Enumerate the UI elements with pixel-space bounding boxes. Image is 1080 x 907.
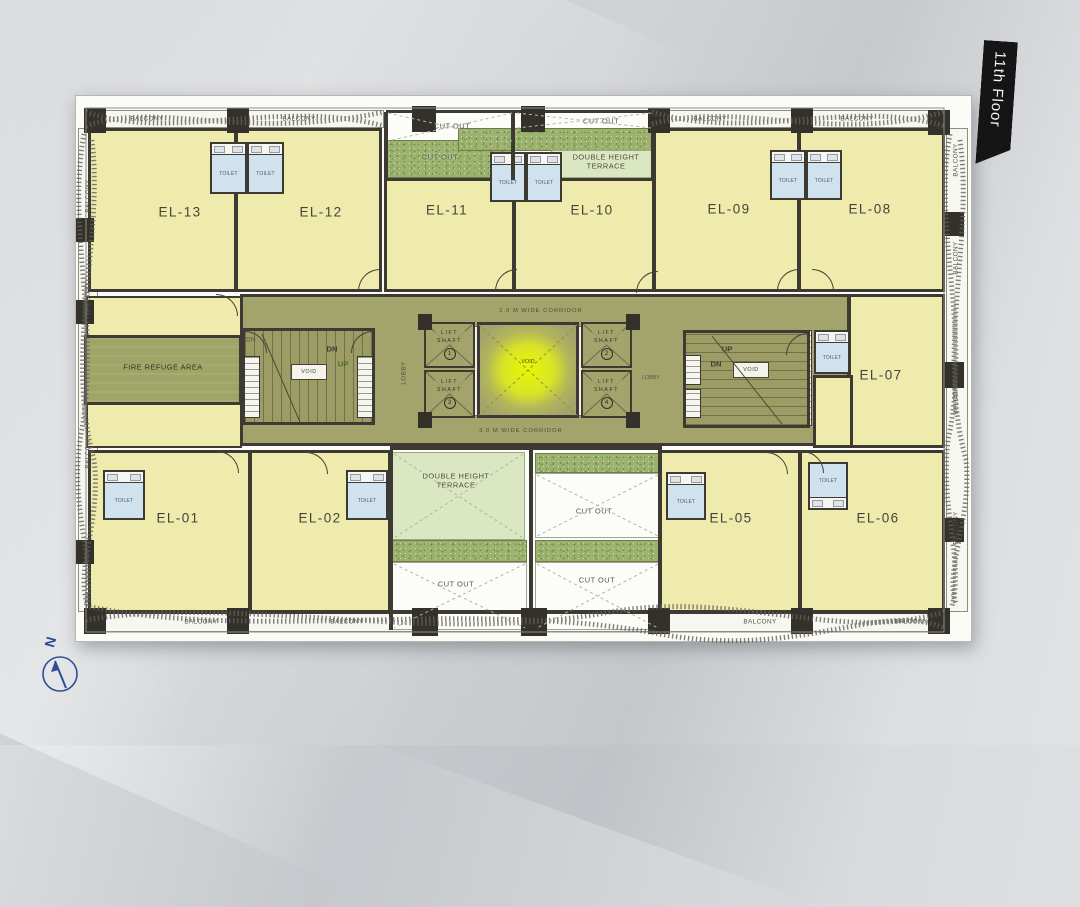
double-height-terrace-bottom <box>392 452 525 540</box>
terrace-label-bottom: DOUBLE HEIGHT TERRACE <box>414 472 498 489</box>
toilet-fixtures <box>348 472 386 483</box>
lift-shaft-2-number: 2 <box>601 348 613 360</box>
balcony-label: BALCONY <box>743 619 776 626</box>
toilet-el07: TOILET <box>814 330 850 374</box>
toilet-fixtures <box>816 332 848 343</box>
floor-banner-label: 11th Floor <box>986 51 1008 128</box>
unit-label-el02: EL-02 <box>298 511 341 526</box>
toilet-el13: TOILET <box>210 142 247 194</box>
planter-bottom-mid-top <box>535 453 660 473</box>
toilet-el10: TOILET <box>526 152 562 202</box>
central-void <box>477 322 579 418</box>
cutout-bottom-right <box>535 562 660 630</box>
balcony-label: BALCONY <box>130 116 163 123</box>
stair-void-box-right: VOID <box>733 362 769 378</box>
column <box>227 608 249 634</box>
balcony-label: BALCONY <box>693 116 726 123</box>
toilet-fixtures <box>772 152 804 163</box>
planter-top-right <box>458 128 653 151</box>
lift-shaft-4-number: 4 <box>601 397 613 409</box>
corridor-label-top: 2.0 M WIDE CORRIDOR <box>499 308 582 314</box>
compass-north-label: N <box>41 635 59 649</box>
column <box>76 540 94 564</box>
toilet-label: TOILET <box>772 163 804 198</box>
column <box>76 218 94 242</box>
toilet-el08: TOILET <box>806 150 842 200</box>
unit-label-el01: EL-01 <box>156 511 199 526</box>
corridor-label-bottom: 3.0 M WIDE CORRIDOR <box>479 428 562 434</box>
column <box>648 608 670 634</box>
lift-shaft-1-label: LIFT SHAFT <box>435 330 465 346</box>
toilet-el09: TOILET <box>770 150 806 200</box>
unit-label-el05: EL-05 <box>709 511 752 526</box>
duct-stair-right-b <box>685 389 701 418</box>
column <box>418 412 432 428</box>
unit-label-el10: EL-10 <box>570 203 613 218</box>
toilet-fixtures <box>105 472 143 483</box>
lift-shaft-3-label: LIFT SHAFT <box>435 379 465 395</box>
toilet-label: TOILET <box>212 155 245 192</box>
wall <box>389 450 393 630</box>
floor-plan-scene: LIFT SHAFT 1 LIFT SHAFT 2 LIFT SHAFT 3 L… <box>0 0 1080 745</box>
column <box>521 106 545 132</box>
planter-bottom-mid <box>535 540 660 562</box>
lift-shaft-2: LIFT SHAFT 2 <box>581 322 632 368</box>
fire-refuge-label: FIRE REFUGE AREA <box>123 363 202 372</box>
central-void-label: VOID <box>521 359 534 365</box>
unit-label-el12: EL-12 <box>299 205 342 220</box>
up-label-left: UP <box>338 360 349 369</box>
toilet-el05: TOILET <box>666 472 706 520</box>
duct-stair-left-a <box>244 356 260 418</box>
balcony-label: BALCONY <box>330 619 363 626</box>
lift-shaft-3-number: 3 <box>444 397 456 409</box>
toilet-fixtures <box>249 144 282 155</box>
balcony-label: BALCONY <box>85 281 92 314</box>
dn-label-right: DN <box>711 360 722 369</box>
column <box>928 608 950 634</box>
wall <box>529 450 533 630</box>
lift-shaft-4: LIFT SHAFT 4 <box>581 370 632 418</box>
balcony-label: BALCONY <box>840 116 873 123</box>
toilet-fixtures <box>492 154 524 165</box>
toilet-el01: TOILET <box>103 470 145 520</box>
toilet-label: TOILET <box>816 343 848 372</box>
toilet-fixtures <box>668 474 704 485</box>
toilet-fixtures <box>808 152 840 163</box>
lift-shaft-4-label: LIFT SHAFT <box>592 379 622 395</box>
cutout-label: CUT OUT <box>579 576 615 585</box>
toilet-label: TOILET <box>668 485 704 518</box>
balcony-label: BALCONY <box>953 511 960 544</box>
toilet-fixtures <box>212 144 245 155</box>
column <box>84 108 106 133</box>
toilet-label: TOILET <box>528 165 560 200</box>
lift-shaft-1-number: 1 <box>444 348 456 360</box>
column <box>521 608 547 636</box>
toilet-fixtures <box>528 154 560 165</box>
dn-label-left-small: DN <box>246 337 256 344</box>
wall <box>390 446 662 450</box>
planter-bottom-left <box>392 540 527 562</box>
unit-label-el08: EL-08 <box>848 202 891 217</box>
toilet-el02: TOILET <box>346 470 388 520</box>
unit-label-el07: EL-07 <box>859 368 902 383</box>
up-label-right: UP <box>722 345 733 354</box>
balcony-label: BALCONY <box>85 569 92 602</box>
lobby-arm-lower <box>86 403 242 448</box>
duct-stair-left-b <box>357 356 373 418</box>
column <box>791 108 813 133</box>
unit-label-el09: EL-09 <box>707 202 750 217</box>
column <box>928 110 950 135</box>
balcony-label: BALCONY <box>85 435 92 468</box>
balcony-label: BALCONY <box>953 381 960 414</box>
terrace-label-top: DOUBLE HEIGHT TERRACE <box>564 153 648 170</box>
toilet-label: TOILET <box>249 155 282 192</box>
balcony-label: BALCONY <box>85 179 92 212</box>
unit-el-07-extension <box>813 375 853 448</box>
column <box>626 314 640 330</box>
wall <box>658 450 662 630</box>
toilet-label: TOILET <box>492 165 524 200</box>
lift-shaft-3: LIFT SHAFT 3 <box>424 370 475 418</box>
cutout-label: CUT OUT <box>422 153 458 162</box>
toilet-el11: TOILET <box>490 152 526 202</box>
cutout-label: CUT OUT <box>583 117 619 126</box>
lobby-label-left: LOBBY <box>401 361 408 384</box>
lobby-label-right: LOBBY <box>642 375 660 381</box>
balcony-label: BALCONY <box>894 619 927 626</box>
unit-label-el06: EL-06 <box>856 511 899 526</box>
column <box>412 608 438 636</box>
balcony-label: BALCONY <box>184 619 217 626</box>
balcony-label: BALCONY <box>282 116 315 123</box>
balcony-label: BALCONY <box>953 241 960 274</box>
cutout-label: CUT OUT <box>438 580 474 589</box>
column <box>412 106 436 132</box>
column <box>648 108 670 133</box>
north-compass: N <box>24 630 96 708</box>
wall <box>384 112 388 180</box>
dn-label-left: DN <box>327 345 338 354</box>
column <box>227 108 249 133</box>
wall <box>88 610 945 614</box>
floor-banner: 11th Floor <box>975 40 1018 166</box>
wall <box>511 112 515 180</box>
toilet-fixtures <box>810 497 846 508</box>
toilet-label: TOILET <box>105 483 143 518</box>
toilet-el12: TOILET <box>247 142 284 194</box>
column <box>626 412 640 428</box>
unit-label-el13: EL-13 <box>158 205 201 220</box>
cutout-bottom-mid <box>535 473 660 538</box>
column <box>791 608 813 634</box>
balcony-label: BALCONY <box>953 143 960 176</box>
toilet-label: TOILET <box>808 163 840 198</box>
toilet-label: TOILET <box>348 483 386 518</box>
cutout-label: CUT OUT <box>434 122 470 131</box>
lift-shaft-2-label: LIFT SHAFT <box>592 330 622 346</box>
duct-stair-right-a <box>685 355 701 385</box>
stair-void-box-left: VOID <box>291 364 327 380</box>
column <box>418 314 432 330</box>
unit-label-el11: EL-11 <box>426 203 468 218</box>
cutout-label: CUT OUT <box>576 507 612 516</box>
column <box>944 212 964 236</box>
